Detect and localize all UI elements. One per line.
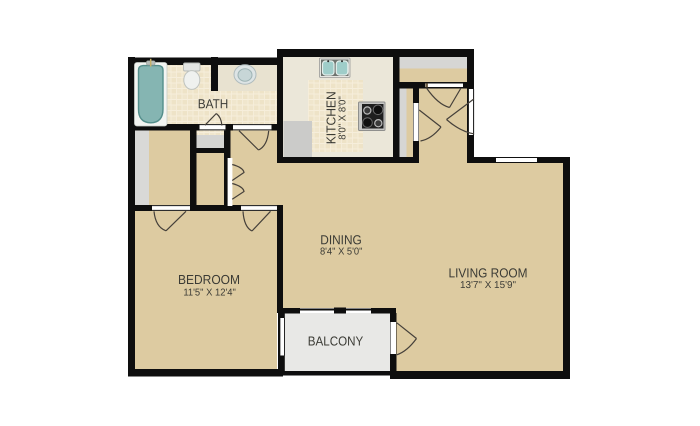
svg-text:13'7" X 15'9": 13'7" X 15'9" xyxy=(460,280,516,291)
svg-text:BATH: BATH xyxy=(198,96,229,111)
svg-text:8'0" X 8'0": 8'0" X 8'0" xyxy=(338,96,349,140)
svg-text:BEDROOM: BEDROOM xyxy=(178,272,240,287)
svg-text:11'5" X 12'4": 11'5" X 12'4" xyxy=(183,287,236,298)
svg-text:DINING: DINING xyxy=(320,232,362,247)
svg-text:KITCHEN: KITCHEN xyxy=(324,91,339,144)
svg-text:LIVING ROOM: LIVING ROOM xyxy=(448,265,527,280)
svg-text:BALCONY: BALCONY xyxy=(308,333,364,348)
svg-text:8'4" X 5'0": 8'4" X 5'0" xyxy=(320,246,363,257)
